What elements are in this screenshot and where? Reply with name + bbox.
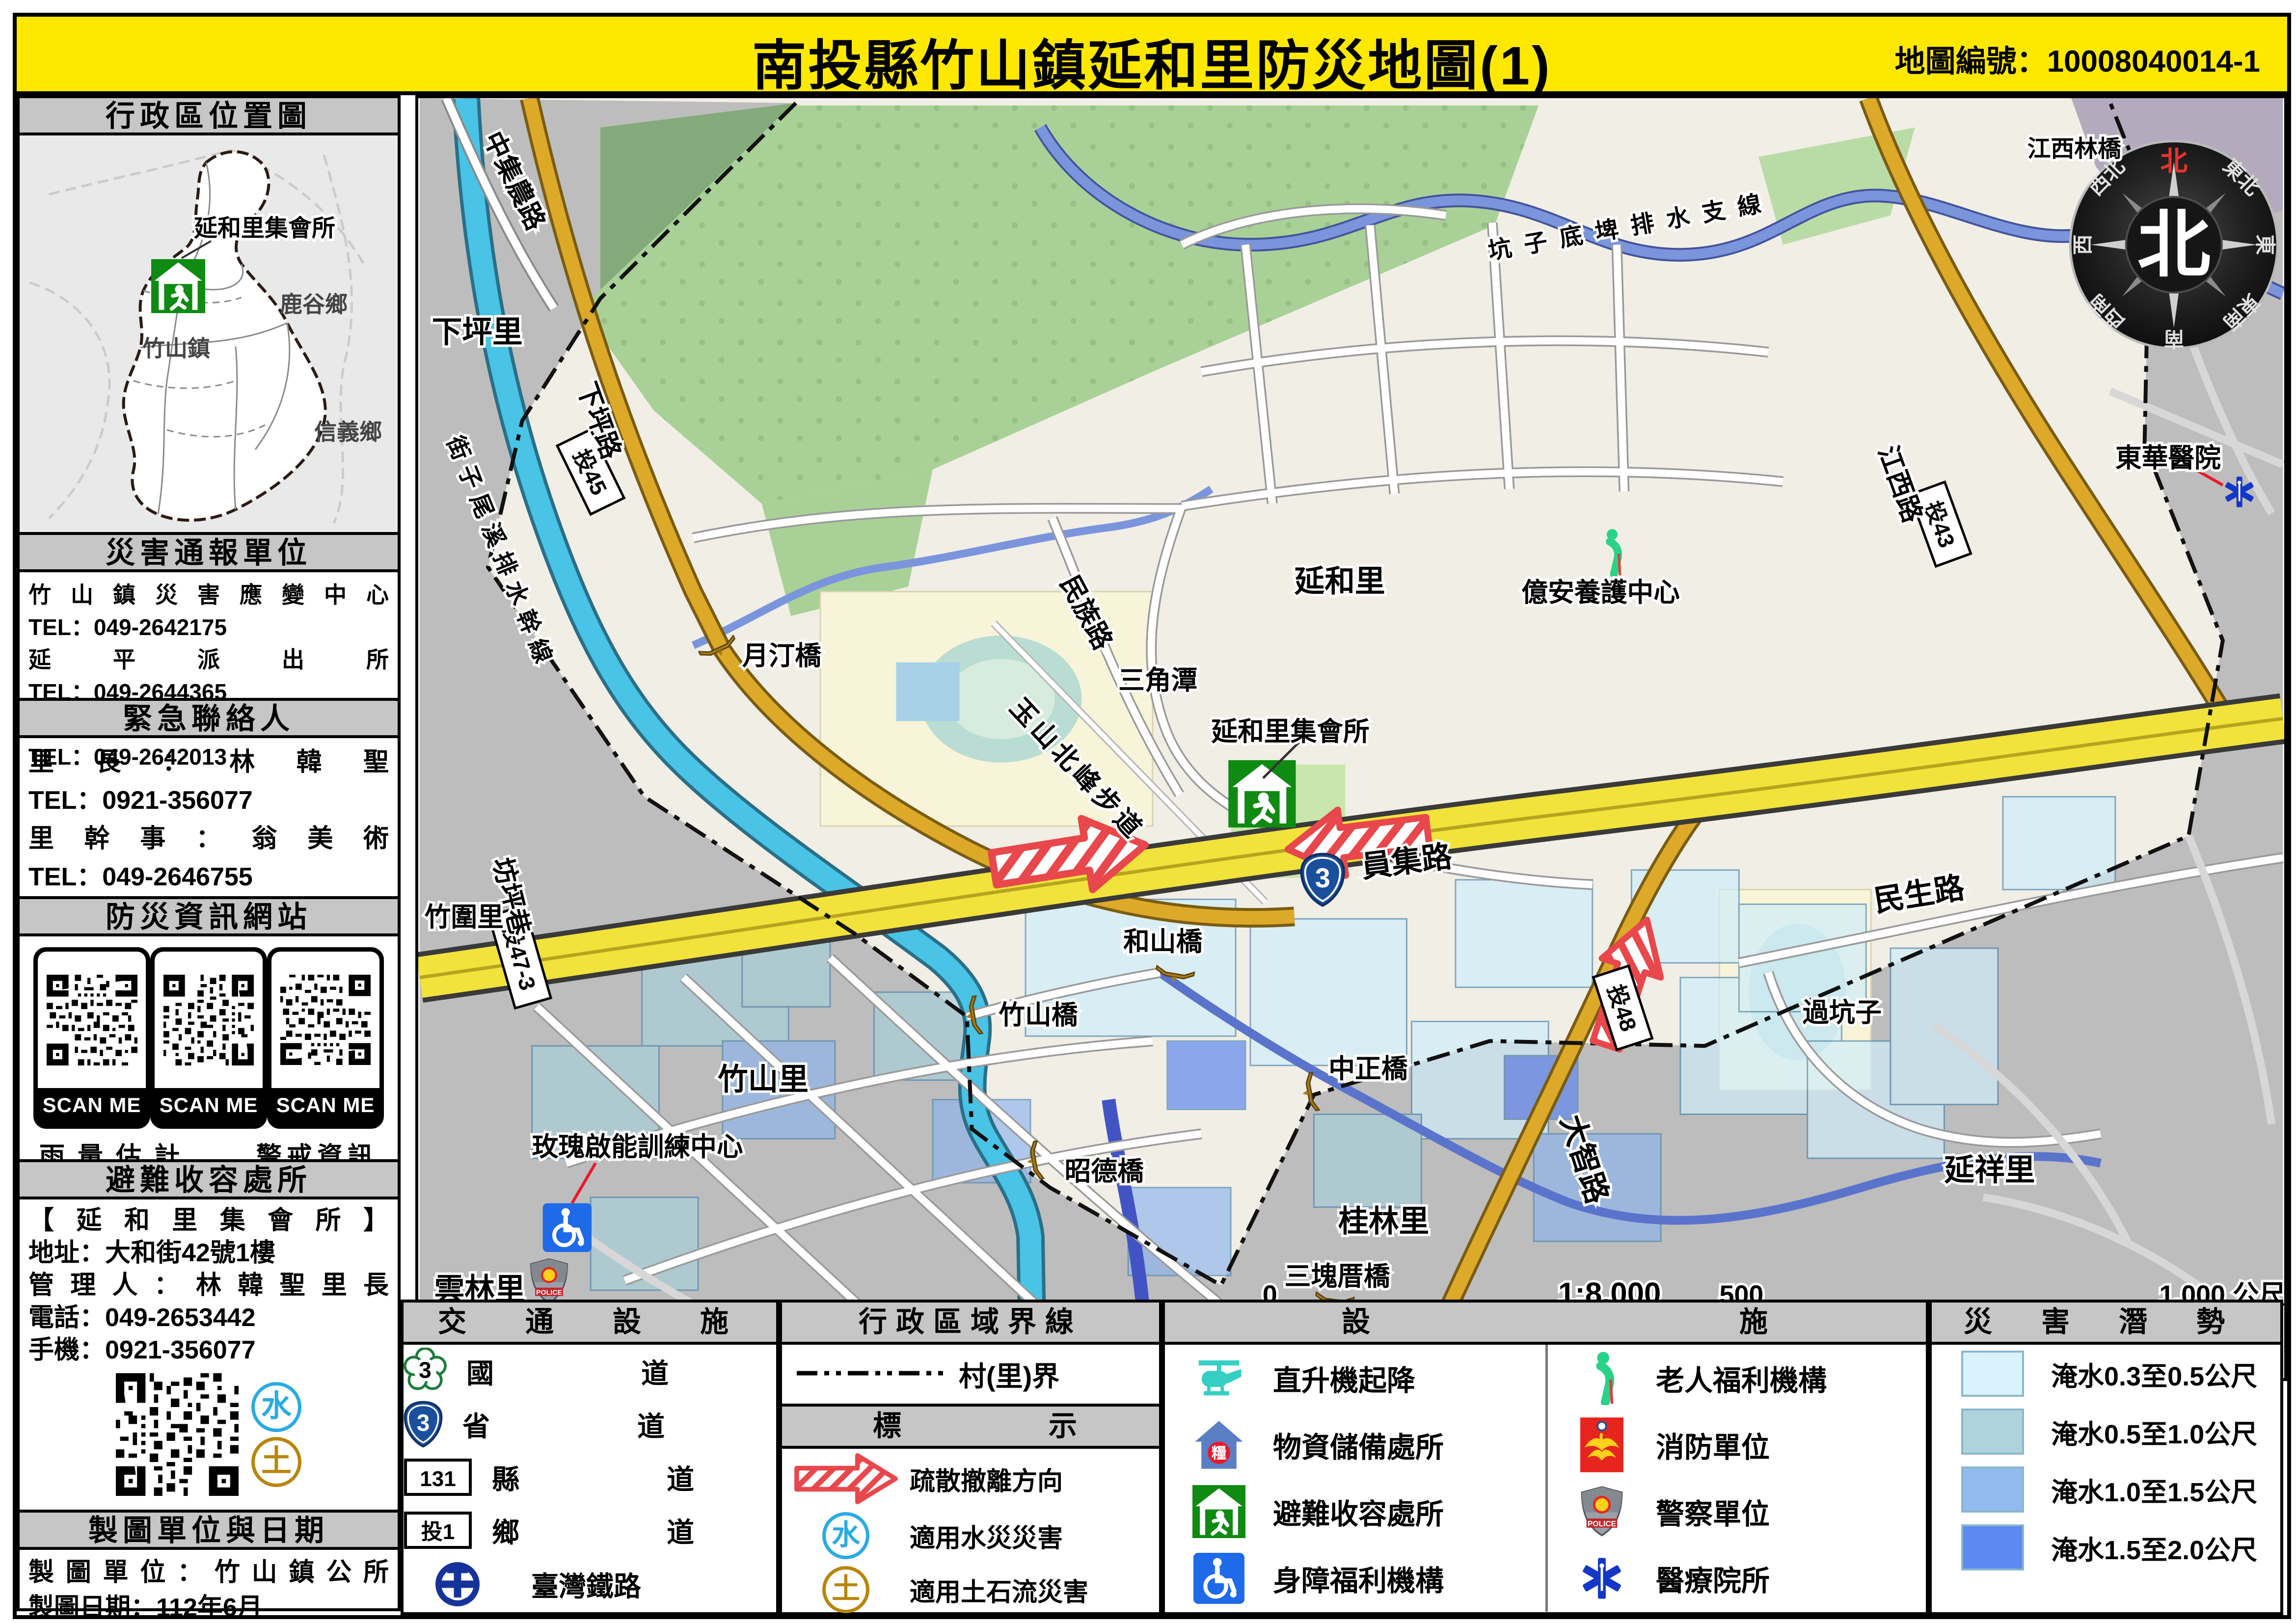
medical-icon xyxy=(1548,1555,1656,1602)
report-unit-name: 竹山鎮災害應變中心 xyxy=(28,577,389,610)
svg-text:下坪里: 下坪里 xyxy=(432,316,523,349)
shelter-map-icon[interactable] xyxy=(1228,760,1296,827)
svg-text:億安養護中心: 億安養護中心 xyxy=(1521,578,1680,607)
police-unit-icon xyxy=(1548,1485,1656,1539)
scan-me-label: SCAN ME xyxy=(155,1088,263,1124)
flood-swatch-1 xyxy=(1961,1351,2024,1397)
compass-rose: 北 北 西北 東北 西 東 西南 南 東南 xyxy=(2070,141,2277,350)
scan-me-label: SCAN ME xyxy=(271,1088,379,1124)
evacuation-arrow-icon xyxy=(782,1451,910,1506)
scan-me-label: SCAN ME xyxy=(38,1088,146,1124)
svg-text:延和里集會所: 延和里集會所 xyxy=(1211,717,1370,746)
svg-text:月汀橋: 月汀橋 xyxy=(742,641,822,671)
disaster-map-page: 南投縣竹山鎮延和里防災地圖(1) 地圖編號：10008040014-1 行政區位… xyxy=(0,0,2296,1623)
elder-welfare-icon xyxy=(1548,1351,1656,1405)
svg-text:和山橋: 和山橋 xyxy=(1123,927,1203,957)
report-unit-tel: TEL：049-2642175 xyxy=(28,610,389,642)
national-highway-icon xyxy=(404,1348,447,1395)
legend-admin-boundary: 行政區域界線 村(里)界 標示 疏散撤離方向 水 適用水災災害 土 適用土石流災… xyxy=(779,1300,1162,1615)
provincial-highway-icon xyxy=(404,1401,443,1448)
svg-text:三角潭: 三角潭 xyxy=(1118,665,1197,695)
legend-admin-header: 行政區域界線 xyxy=(782,1303,1159,1345)
svg-text:延和里: 延和里 xyxy=(1295,564,1385,598)
soil-hazard-icon: 土 xyxy=(251,1437,301,1487)
svg-text:過坑子: 過坑子 xyxy=(1803,998,1882,1027)
county-road-icon: 131 xyxy=(404,1455,472,1499)
web-qr-section: SCAN ME SCAN ME SCAN ME 雨量估計 警戒資訊 xyxy=(17,933,401,1162)
flood-swatch-2 xyxy=(1961,1409,2024,1455)
shelter-info: 【延和里集會所】 地址：大和街42號1樓 管理人：林韓聖里長 電話：049-26… xyxy=(17,1197,401,1513)
main-map[interactable]: 投45 投43 投47-3 投48 xyxy=(415,95,2287,1381)
qr-card[interactable]: SCAN ME xyxy=(33,947,150,1129)
helicopter-icon xyxy=(1165,1351,1273,1405)
section-header-report: 災害通報單位 xyxy=(17,532,401,572)
credit-unit: 製圖單位：竹山鎮公所 xyxy=(28,1555,389,1590)
disability-welfare-icon xyxy=(1165,1553,1273,1604)
flood-swatch-3 xyxy=(1961,1466,2024,1513)
svg-text:玫瑰啟能訓練中心: 玫瑰啟能訓練中心 xyxy=(532,1132,743,1162)
map-frame: 南投縣竹山鎮延和里防災地圖(1) 地圖編號：10008040014-1 行政區位… xyxy=(13,13,2291,1619)
section-header-credits: 製圖單位與日期 xyxy=(17,1510,401,1550)
flood-swatch-4 xyxy=(1961,1524,2024,1570)
svg-text:三塊厝橋: 三塊厝橋 xyxy=(1285,1262,1390,1291)
sidebar: 行政區位置圖 xyxy=(17,95,401,1611)
contact-tel: TEL：049-2646755 xyxy=(28,858,389,896)
legend-hazard: 災害潛勢 淹水0.3至0.5公尺 淹水0.5至1.0公尺 淹水1.0至1.5公尺… xyxy=(1929,1300,2283,1615)
shelter-name: 【延和里集會所】 xyxy=(28,1204,389,1237)
shelter-icon xyxy=(151,259,205,313)
svg-text:中正橋: 中正橋 xyxy=(1328,1054,1408,1084)
svg-text:投1: 投1 xyxy=(421,1520,455,1544)
legend-facilities: 設施 直升機起降 物資儲備處所 避難收容處所 身障福利機構 xyxy=(1162,1300,1929,1615)
section-header-shelter: 避難收容處所 xyxy=(17,1159,401,1199)
qr-card[interactable]: SCAN ME xyxy=(150,947,267,1129)
credit-date: 製圖日期：112年6月 xyxy=(28,1590,389,1623)
shelter-manager: 管理人：林韓聖里長 xyxy=(28,1269,389,1302)
town-xinyi: 信義鄉 xyxy=(314,419,382,445)
emergency-contacts: 里長：林韓聖 TEL：0921-356077 里幹事：翁美術 TEL：049-2… xyxy=(17,735,401,899)
map-number: 地圖編號：10008040014-1 xyxy=(1895,36,2260,80)
shelter-tel: 電話：049-2653442 xyxy=(28,1302,389,1334)
admin-location-map: 延和里集會所 鹿谷鄉 竹山鎮 信義鄉 xyxy=(17,133,401,535)
town-lugu: 鹿谷鄉 xyxy=(280,292,348,317)
map-svg[interactable]: 投45 投43 投47-3 投48 xyxy=(418,98,2284,1378)
shelter-address: 地址：大和街42號1樓 xyxy=(28,1237,389,1269)
legend-hazard-header: 災害潛勢 xyxy=(1932,1303,2280,1345)
legend-marks-header: 標示 xyxy=(782,1407,1159,1449)
report-unit-name: 延平派出所 xyxy=(28,642,389,674)
svg-text:江西林橋: 江西林橋 xyxy=(2027,136,2121,162)
compass-center-north: 北 xyxy=(2137,204,2211,286)
svg-text:131: 131 xyxy=(420,1467,456,1491)
water-disaster-icon: 水 xyxy=(782,1512,910,1559)
shelter-qr[interactable] xyxy=(116,1373,239,1496)
compass-n: 北 xyxy=(2160,146,2188,176)
section-header-location: 行政區位置圖 xyxy=(17,95,401,135)
contact-name: 里長：林韓聖 xyxy=(28,743,389,781)
township-road-icon: 投1 xyxy=(404,1508,472,1552)
contact-name: 里幹事：翁美術 xyxy=(28,820,389,858)
svg-text:延祥里: 延祥里 xyxy=(1944,1153,2035,1187)
police-map-icon[interactable] xyxy=(531,1259,567,1303)
svg-text:竹山里: 竹山里 xyxy=(718,1063,809,1097)
water-hazard-icon: 水 xyxy=(251,1382,301,1432)
supply-storage-icon xyxy=(1165,1419,1273,1470)
compass-e: 東 xyxy=(2254,235,2277,255)
report-units: 竹山鎮災害應變中心 TEL：049-2642175 延平派出所 TEL：049-… xyxy=(17,569,401,701)
loc-shelter-label: 延和里集會所 xyxy=(194,215,335,241)
svg-text:桂林里: 桂林里 xyxy=(1338,1204,1429,1238)
legend-transport: 交通設施 國道 省道 131 縣道 投1 鄉道 臺灣鐵路 xyxy=(401,1300,779,1615)
railway-icon xyxy=(404,1561,512,1608)
section-header-contacts: 緊急聯絡人 xyxy=(17,698,401,738)
town-zhushan: 竹山鎮 xyxy=(142,336,210,361)
village-boundary-line xyxy=(782,1369,959,1380)
qr-card[interactable]: SCAN ME xyxy=(267,947,384,1129)
legend-facilities-header: 設施 xyxy=(1165,1303,1926,1345)
shelter-mobile: 手機：0921-356077 xyxy=(28,1334,389,1366)
svg-text:竹圍里: 竹圍里 xyxy=(425,903,504,932)
compass-w: 西 xyxy=(2071,235,2094,255)
svg-text:東華醫院: 東華醫院 xyxy=(2115,444,2221,473)
legend-transport-header: 交通設施 xyxy=(404,1303,776,1345)
disability-map-icon[interactable] xyxy=(543,1203,592,1252)
compass-s: 南 xyxy=(2163,327,2184,350)
title-bar: 南投縣竹山鎮延和里防災地圖(1) 地圖編號：10008040014-1 xyxy=(17,17,2287,95)
evac-shelter-icon xyxy=(1165,1485,1273,1538)
location-map-svg: 延和里集會所 鹿谷鄉 竹山鎮 信義鄉 xyxy=(20,135,398,532)
contact-tel: TEL：0921-356077 xyxy=(28,781,389,820)
section-header-web: 防災資訊網站 xyxy=(17,896,401,936)
svg-text:昭德橋: 昭德橋 xyxy=(1065,1157,1144,1186)
credits: 製圖單位：竹山鎮公所 製圖日期：112年6月 xyxy=(17,1547,401,1611)
fire-unit-icon xyxy=(1548,1417,1656,1472)
svg-text:竹山橋: 竹山橋 xyxy=(999,1000,1078,1030)
debris-flow-icon: 土 xyxy=(782,1566,910,1613)
